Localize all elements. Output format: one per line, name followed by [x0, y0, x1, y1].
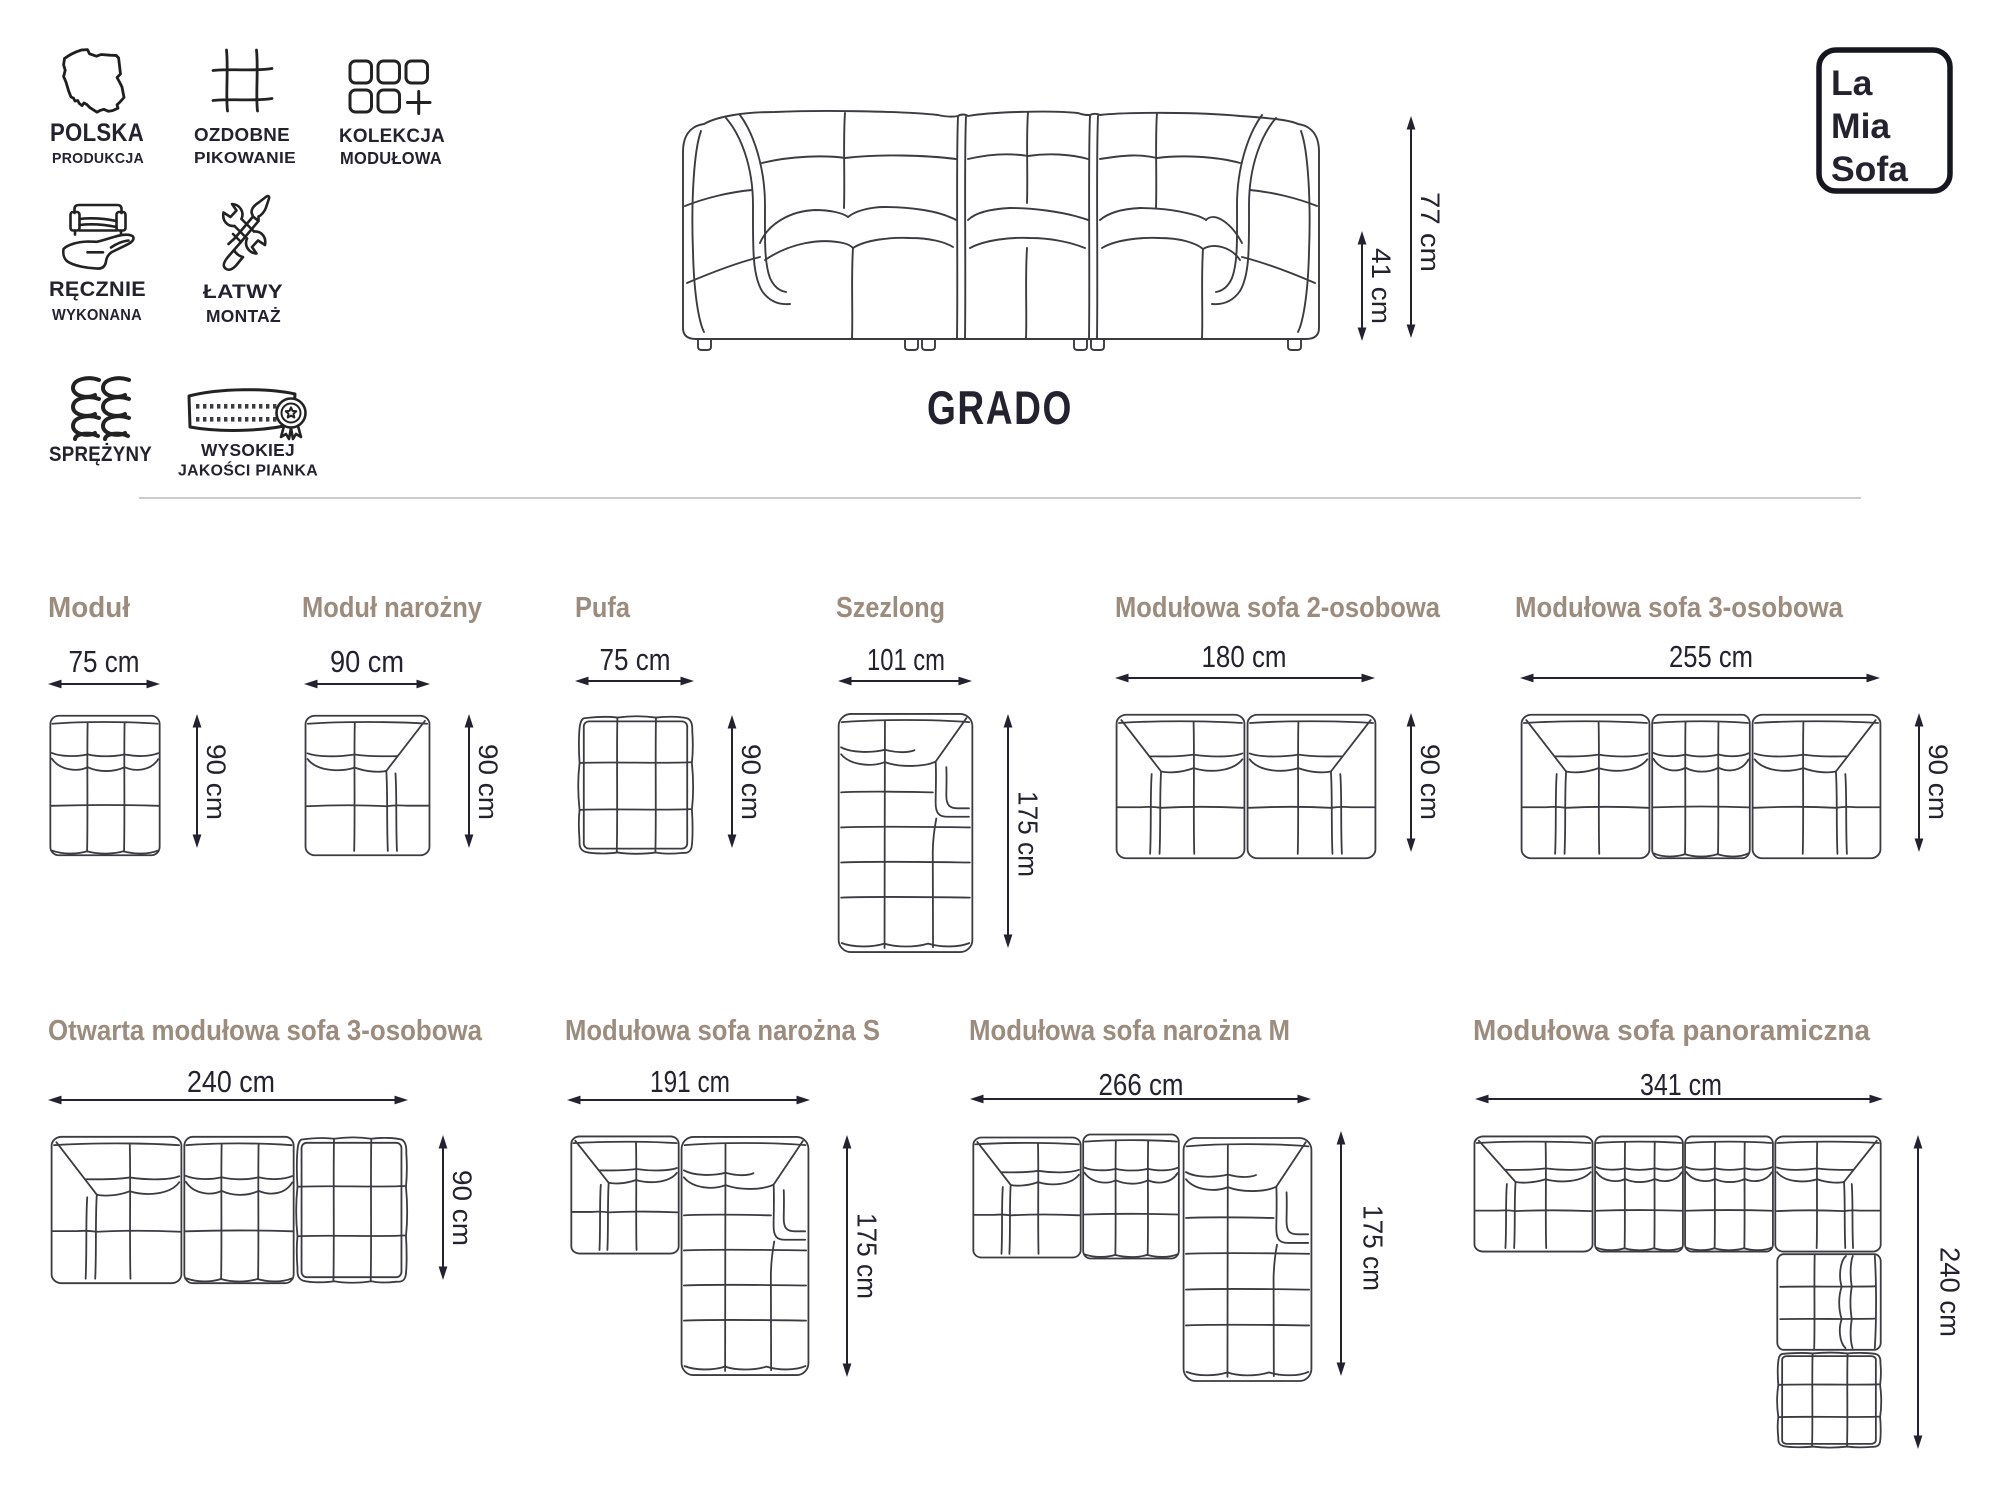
svg-text:101 cm: 101 cm	[867, 643, 945, 677]
svg-text:Mia: Mia	[1831, 106, 1890, 146]
svg-text:240 cm: 240 cm	[187, 1065, 275, 1099]
svg-text:RĘCZNIE: RĘCZNIE	[49, 278, 146, 301]
svg-text:POLSKA: POLSKA	[50, 119, 144, 147]
svg-text:75 cm: 75 cm	[600, 643, 671, 677]
svg-text:La: La	[1831, 63, 1873, 103]
svg-text:Szezlong: Szezlong	[836, 592, 945, 624]
svg-text:341 cm: 341 cm	[1640, 1068, 1722, 1102]
svg-text:MODUŁOWA: MODUŁOWA	[340, 148, 442, 168]
svg-text:191 cm: 191 cm	[650, 1065, 730, 1099]
svg-text:Otwarta modułowa sofa 3-osobow: Otwarta modułowa sofa 3-osobowa	[48, 1015, 483, 1047]
svg-text:90 cm: 90 cm	[447, 1170, 477, 1246]
svg-text:Modułowa sofa narożna M: Modułowa sofa narożna M	[969, 1015, 1290, 1047]
svg-text:Sofa: Sofa	[1831, 149, 1908, 189]
svg-text:240 cm: 240 cm	[1935, 1247, 1966, 1337]
svg-text:Moduł: Moduł	[48, 592, 130, 624]
svg-text:41 cm: 41 cm	[1366, 248, 1396, 324]
svg-text:175 cm: 175 cm	[852, 1213, 883, 1299]
svg-text:GRADO: GRADO	[927, 381, 1073, 434]
svg-text:KOLEKCJA: KOLEKCJA	[339, 126, 445, 147]
svg-text:90 cm: 90 cm	[330, 645, 404, 679]
svg-text:Modułowa sofa panoramiczna: Modułowa sofa panoramiczna	[1473, 1015, 1871, 1047]
svg-text:175 cm: 175 cm	[1358, 1205, 1389, 1291]
svg-text:77 cm: 77 cm	[1415, 192, 1445, 272]
svg-text:90 cm: 90 cm	[1415, 744, 1445, 820]
svg-text:Modułowa sofa 2-osobowa: Modułowa sofa 2-osobowa	[1115, 592, 1441, 624]
svg-text:SPRĘŻYNY: SPRĘŻYNY	[49, 443, 152, 466]
svg-text:JAKOŚCI PIANKA: JAKOŚCI PIANKA	[178, 462, 318, 480]
svg-text:ŁATWY: ŁATWY	[203, 281, 283, 303]
svg-text:175 cm: 175 cm	[1013, 791, 1044, 877]
svg-text:Modułowa sofa narożna S: Modułowa sofa narożna S	[565, 1015, 880, 1047]
svg-text:90 cm: 90 cm	[1923, 744, 1953, 820]
svg-text:255 cm: 255 cm	[1669, 640, 1753, 674]
svg-text:PIKOWANIE: PIKOWANIE	[194, 150, 296, 167]
svg-text:75 cm: 75 cm	[69, 645, 140, 679]
svg-text:MONTAŻ: MONTAŻ	[206, 306, 281, 326]
svg-text:Pufa: Pufa	[575, 592, 631, 624]
svg-text:90 cm: 90 cm	[201, 744, 231, 820]
svg-text:Modułowa sofa 3-osobowa: Modułowa sofa 3-osobowa	[1515, 592, 1844, 624]
svg-text:180 cm: 180 cm	[1202, 640, 1287, 674]
svg-text:266 cm: 266 cm	[1099, 1068, 1184, 1102]
svg-text:WYKONANA: WYKONANA	[52, 307, 142, 324]
svg-text:PRODUKCJA: PRODUKCJA	[52, 151, 144, 167]
svg-text:OZDOBNE: OZDOBNE	[194, 124, 290, 145]
svg-text:90 cm: 90 cm	[736, 744, 766, 820]
svg-text:Moduł narożny: Moduł narożny	[302, 592, 482, 624]
svg-text:90 cm: 90 cm	[473, 744, 503, 820]
svg-text:WYSOKIEJ: WYSOKIEJ	[201, 440, 295, 460]
